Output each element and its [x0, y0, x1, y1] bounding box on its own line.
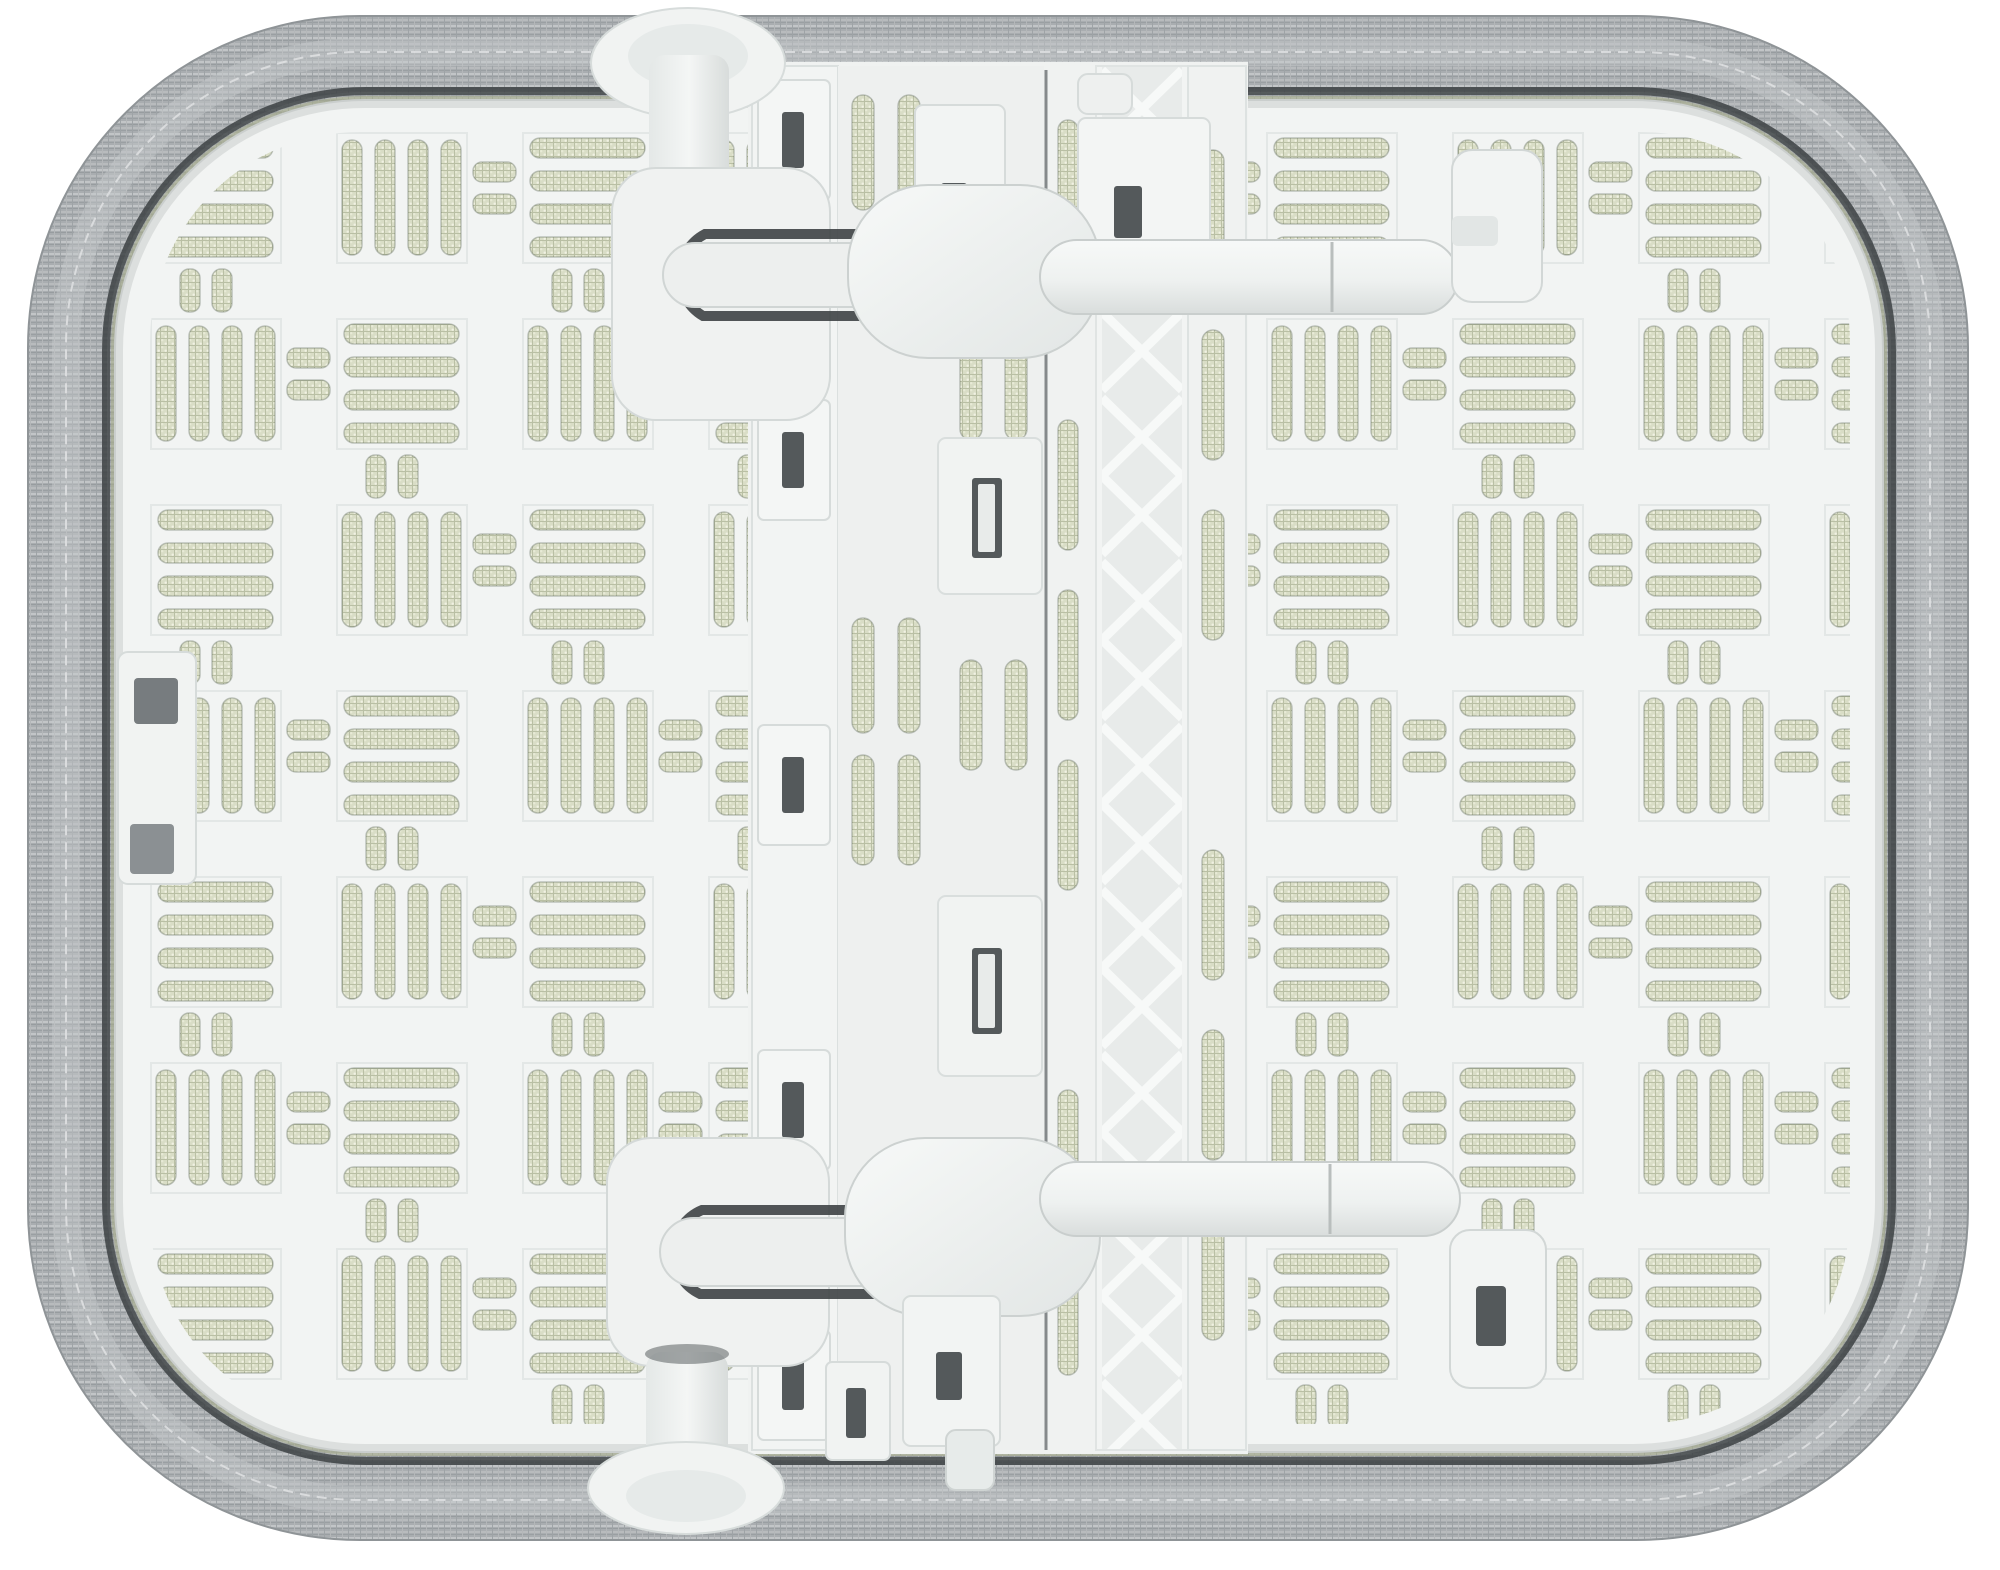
bottom-leg-tube	[1040, 1162, 1460, 1236]
edge-clip	[118, 652, 196, 884]
latch-plate-lower-slider	[978, 954, 995, 1028]
ironing-board-underside-photo	[0, 0, 2000, 1570]
edge-clip-hole-top	[134, 678, 178, 724]
top-leg-end-clip-notch	[1452, 216, 1498, 246]
product-photo-stage	[0, 0, 2000, 1570]
bottom-stem-shadow	[645, 1344, 729, 1364]
latch-window	[782, 112, 804, 168]
top-leg-tube	[1040, 240, 1458, 314]
bottom-foot-tab	[946, 1430, 994, 1490]
bottom-foot-cap-recess	[626, 1470, 746, 1522]
latch-window	[782, 757, 804, 813]
bottom-latch-tab-window	[846, 1388, 866, 1438]
top-cover-tab	[1078, 74, 1132, 114]
edge-clip-hole-bottom	[130, 824, 174, 874]
latch-plate-upper-slider	[978, 484, 995, 552]
bottom-bracket-window	[936, 1352, 962, 1400]
latch-window	[782, 1082, 804, 1138]
bottom-leg-end-clip-window	[1476, 1286, 1506, 1346]
top-hinge-bracket-window	[1114, 186, 1142, 238]
latch-window	[782, 432, 804, 488]
